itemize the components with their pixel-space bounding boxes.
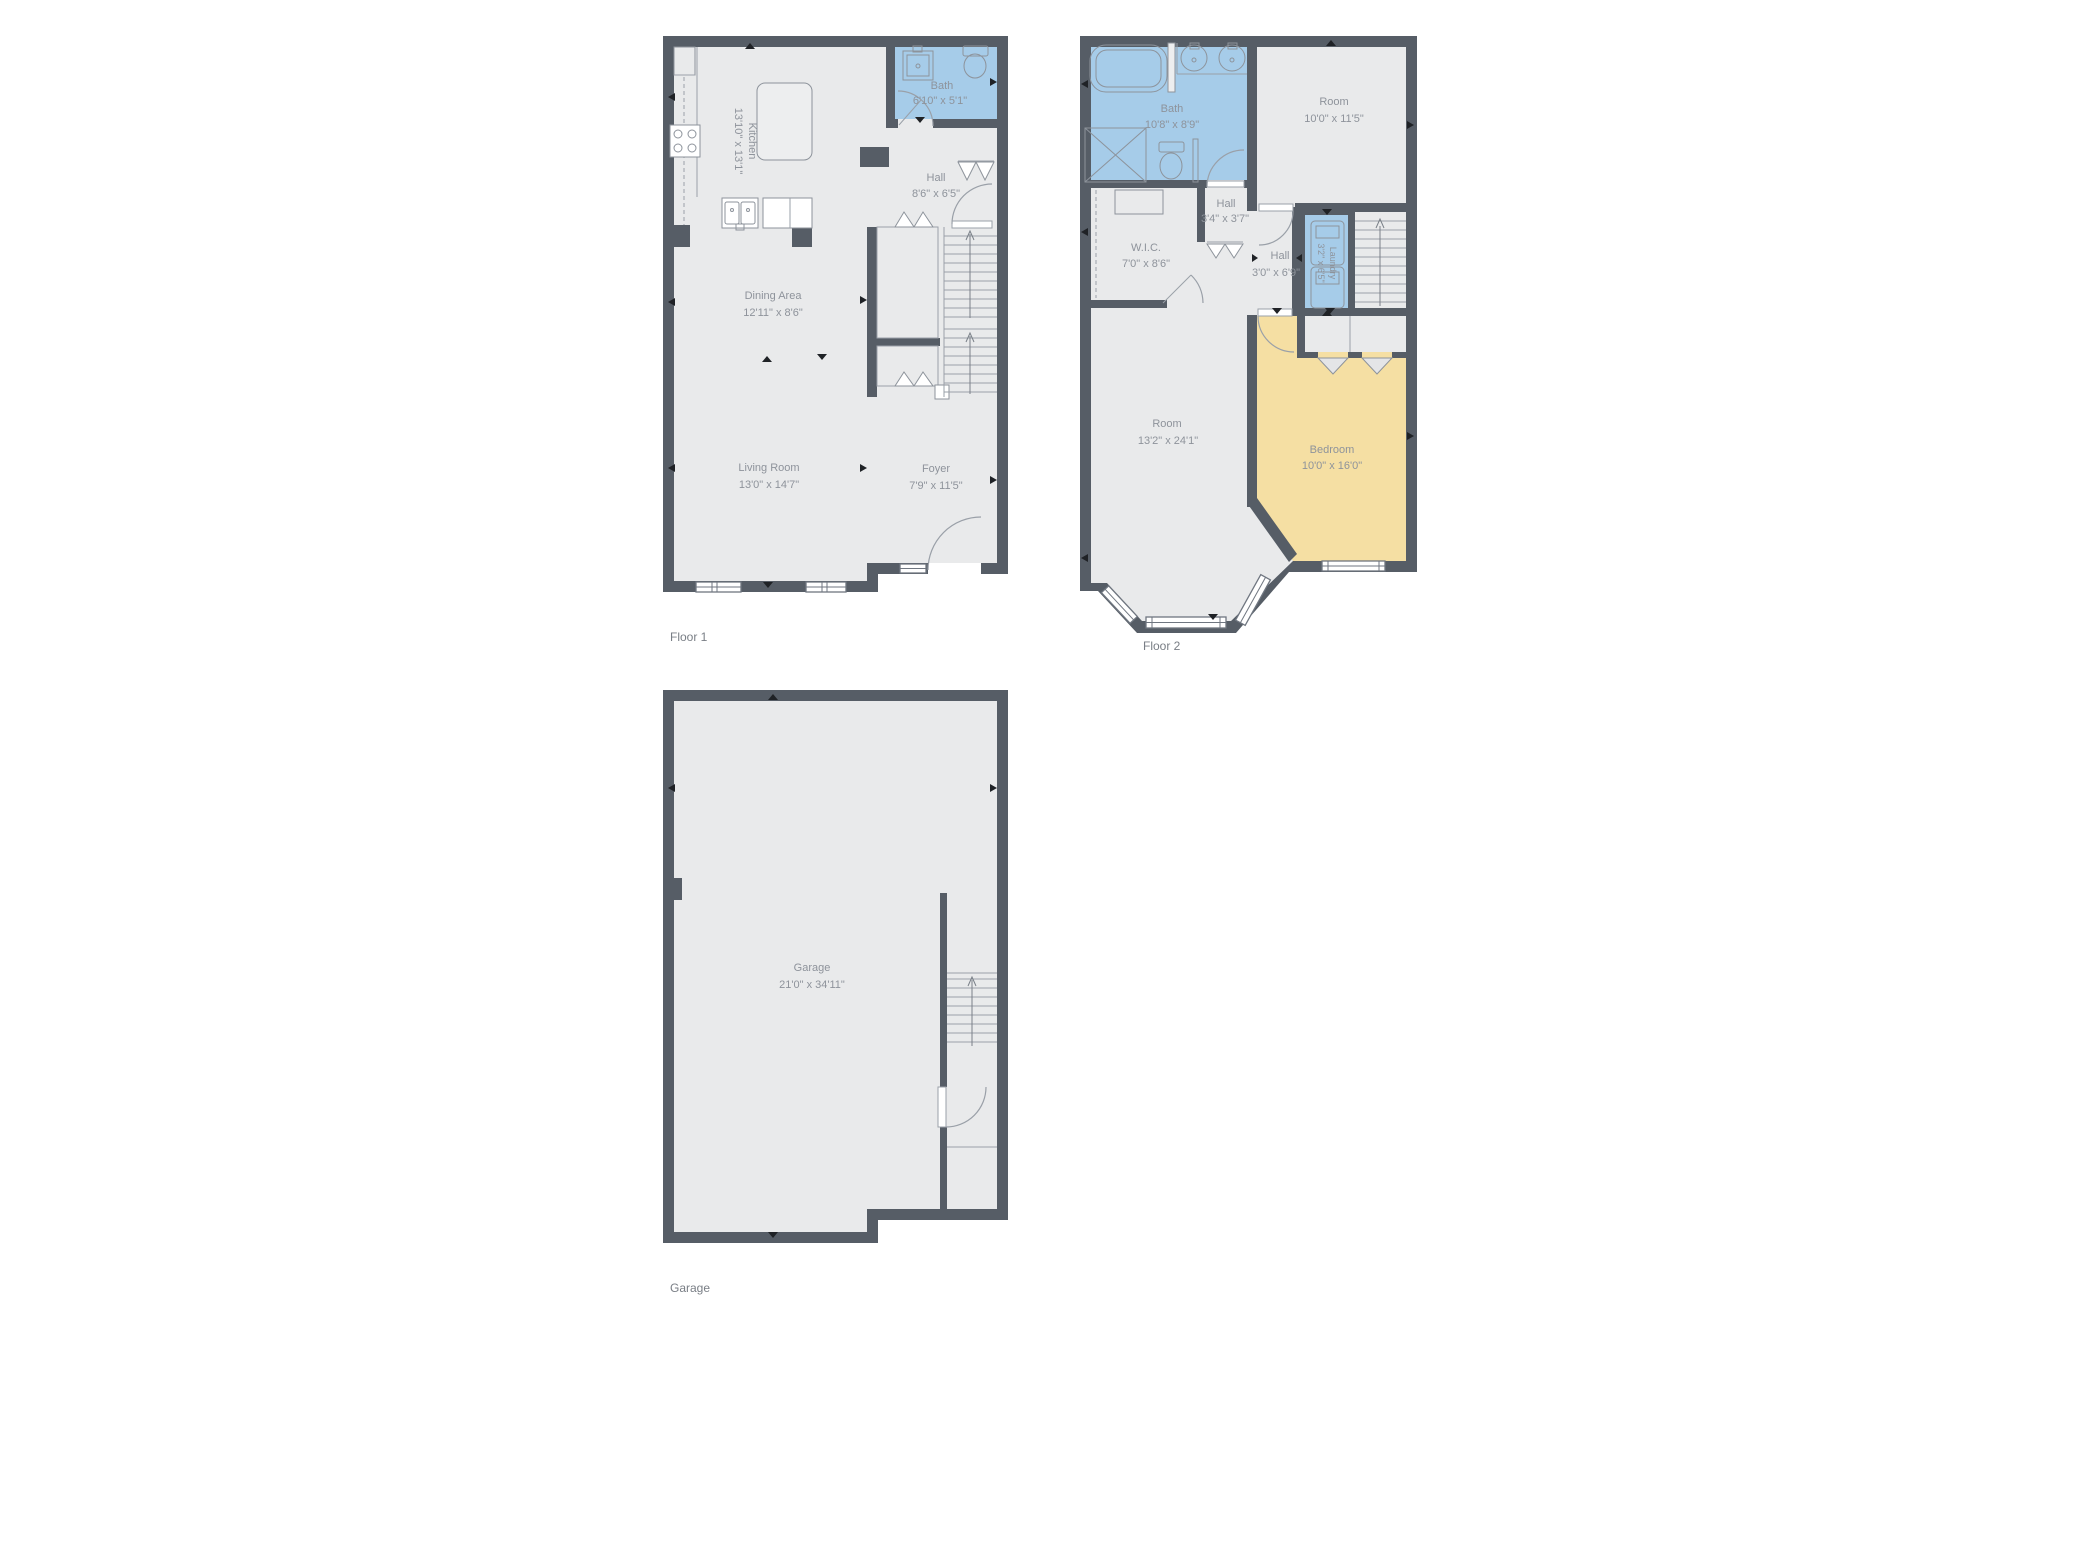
floorplan-image: Kitchen 13'10" x 13'1" Bath 6'10" x 5'1"… [0, 0, 2080, 1560]
svg-text:6'10" x 5'1": 6'10" x 5'1" [913, 95, 967, 107]
svg-text:W.I.C.: W.I.C. [1131, 242, 1161, 254]
svg-text:Hall: Hall [1271, 250, 1290, 262]
svg-text:Hall: Hall [1217, 198, 1236, 210]
room-name: Kitchen [746, 123, 758, 160]
floor1-plan-label: Floor 1 [670, 630, 708, 644]
floor2-plan: Bath 10'8" x 8'9" Room 10'0" x 11'5" Hal… [1080, 36, 1417, 653]
tub-divider [1168, 43, 1175, 92]
garage-plan: Garage 21'0" x 34'11" Garage [663, 690, 1008, 1295]
room-dims: 13'10" x 13'1" [732, 108, 744, 175]
svg-text:Bedroom: Bedroom [1310, 444, 1355, 456]
svg-text:Bath: Bath [1161, 103, 1184, 115]
foyer-sidelight-window-icon [900, 564, 926, 573]
svg-text:Foyer: Foyer [922, 463, 950, 475]
svg-text:Dining Area: Dining Area [745, 290, 803, 302]
svg-text:7'0" x 8'6": 7'0" x 8'6" [1122, 258, 1170, 270]
svg-text:Hall: Hall [927, 172, 946, 184]
floor2-plan-label: Floor 2 [1143, 639, 1181, 653]
svg-text:Bath: Bath [931, 80, 954, 92]
living-room-window-icon [696, 582, 741, 592]
stove-icon [670, 125, 700, 157]
bedroom-window-icon [1322, 561, 1385, 571]
living-room-window-icon [806, 582, 846, 592]
kitchen-sink-icon [722, 198, 758, 230]
svg-text:12'11" x 8'6": 12'11" x 8'6" [743, 307, 803, 319]
svg-text:10'0" x 16'0": 10'0" x 16'0" [1302, 460, 1362, 472]
kitchen-island-icon [757, 83, 812, 160]
svg-text:10'0" x 11'5": 10'0" x 11'5" [1304, 113, 1364, 125]
svg-text:3'0" x 6'9": 3'0" x 6'9" [1252, 267, 1300, 279]
garage-floor-area [674, 701, 997, 1232]
floor1-plan: Kitchen 13'10" x 13'1" Bath 6'10" x 5'1"… [663, 36, 1008, 644]
svg-text:8'6" x 6'5": 8'6" x 6'5" [912, 188, 960, 200]
bedroom-closet-area [1305, 316, 1406, 352]
kitchen-counter-icon [763, 198, 812, 228]
svg-text:7'9" x 11'5": 7'9" x 11'5" [909, 480, 962, 492]
svg-text:Garage: Garage [794, 962, 831, 974]
svg-text:3'2" x 6'5": 3'2" x 6'5" [1316, 243, 1326, 282]
svg-text:10'8" x 8'9": 10'8" x 8'9" [1145, 119, 1199, 131]
garage-plan-label: Garage [670, 1281, 710, 1295]
svg-text:13'2" x 24'1": 13'2" x 24'1" [1138, 435, 1198, 447]
svg-text:Living Room: Living Room [738, 462, 799, 474]
svg-text:21'0" x 34'11": 21'0" x 34'11" [779, 979, 845, 991]
svg-text:Laundry: Laundry [1328, 247, 1338, 280]
svg-text:3'4" x 3'7": 3'4" x 3'7" [1201, 213, 1249, 225]
svg-text:Room: Room [1152, 418, 1181, 430]
bedroom-area [1257, 316, 1406, 561]
svg-text:13'0" x 14'7": 13'0" x 14'7" [739, 479, 799, 491]
svg-text:Room: Room [1319, 96, 1348, 108]
